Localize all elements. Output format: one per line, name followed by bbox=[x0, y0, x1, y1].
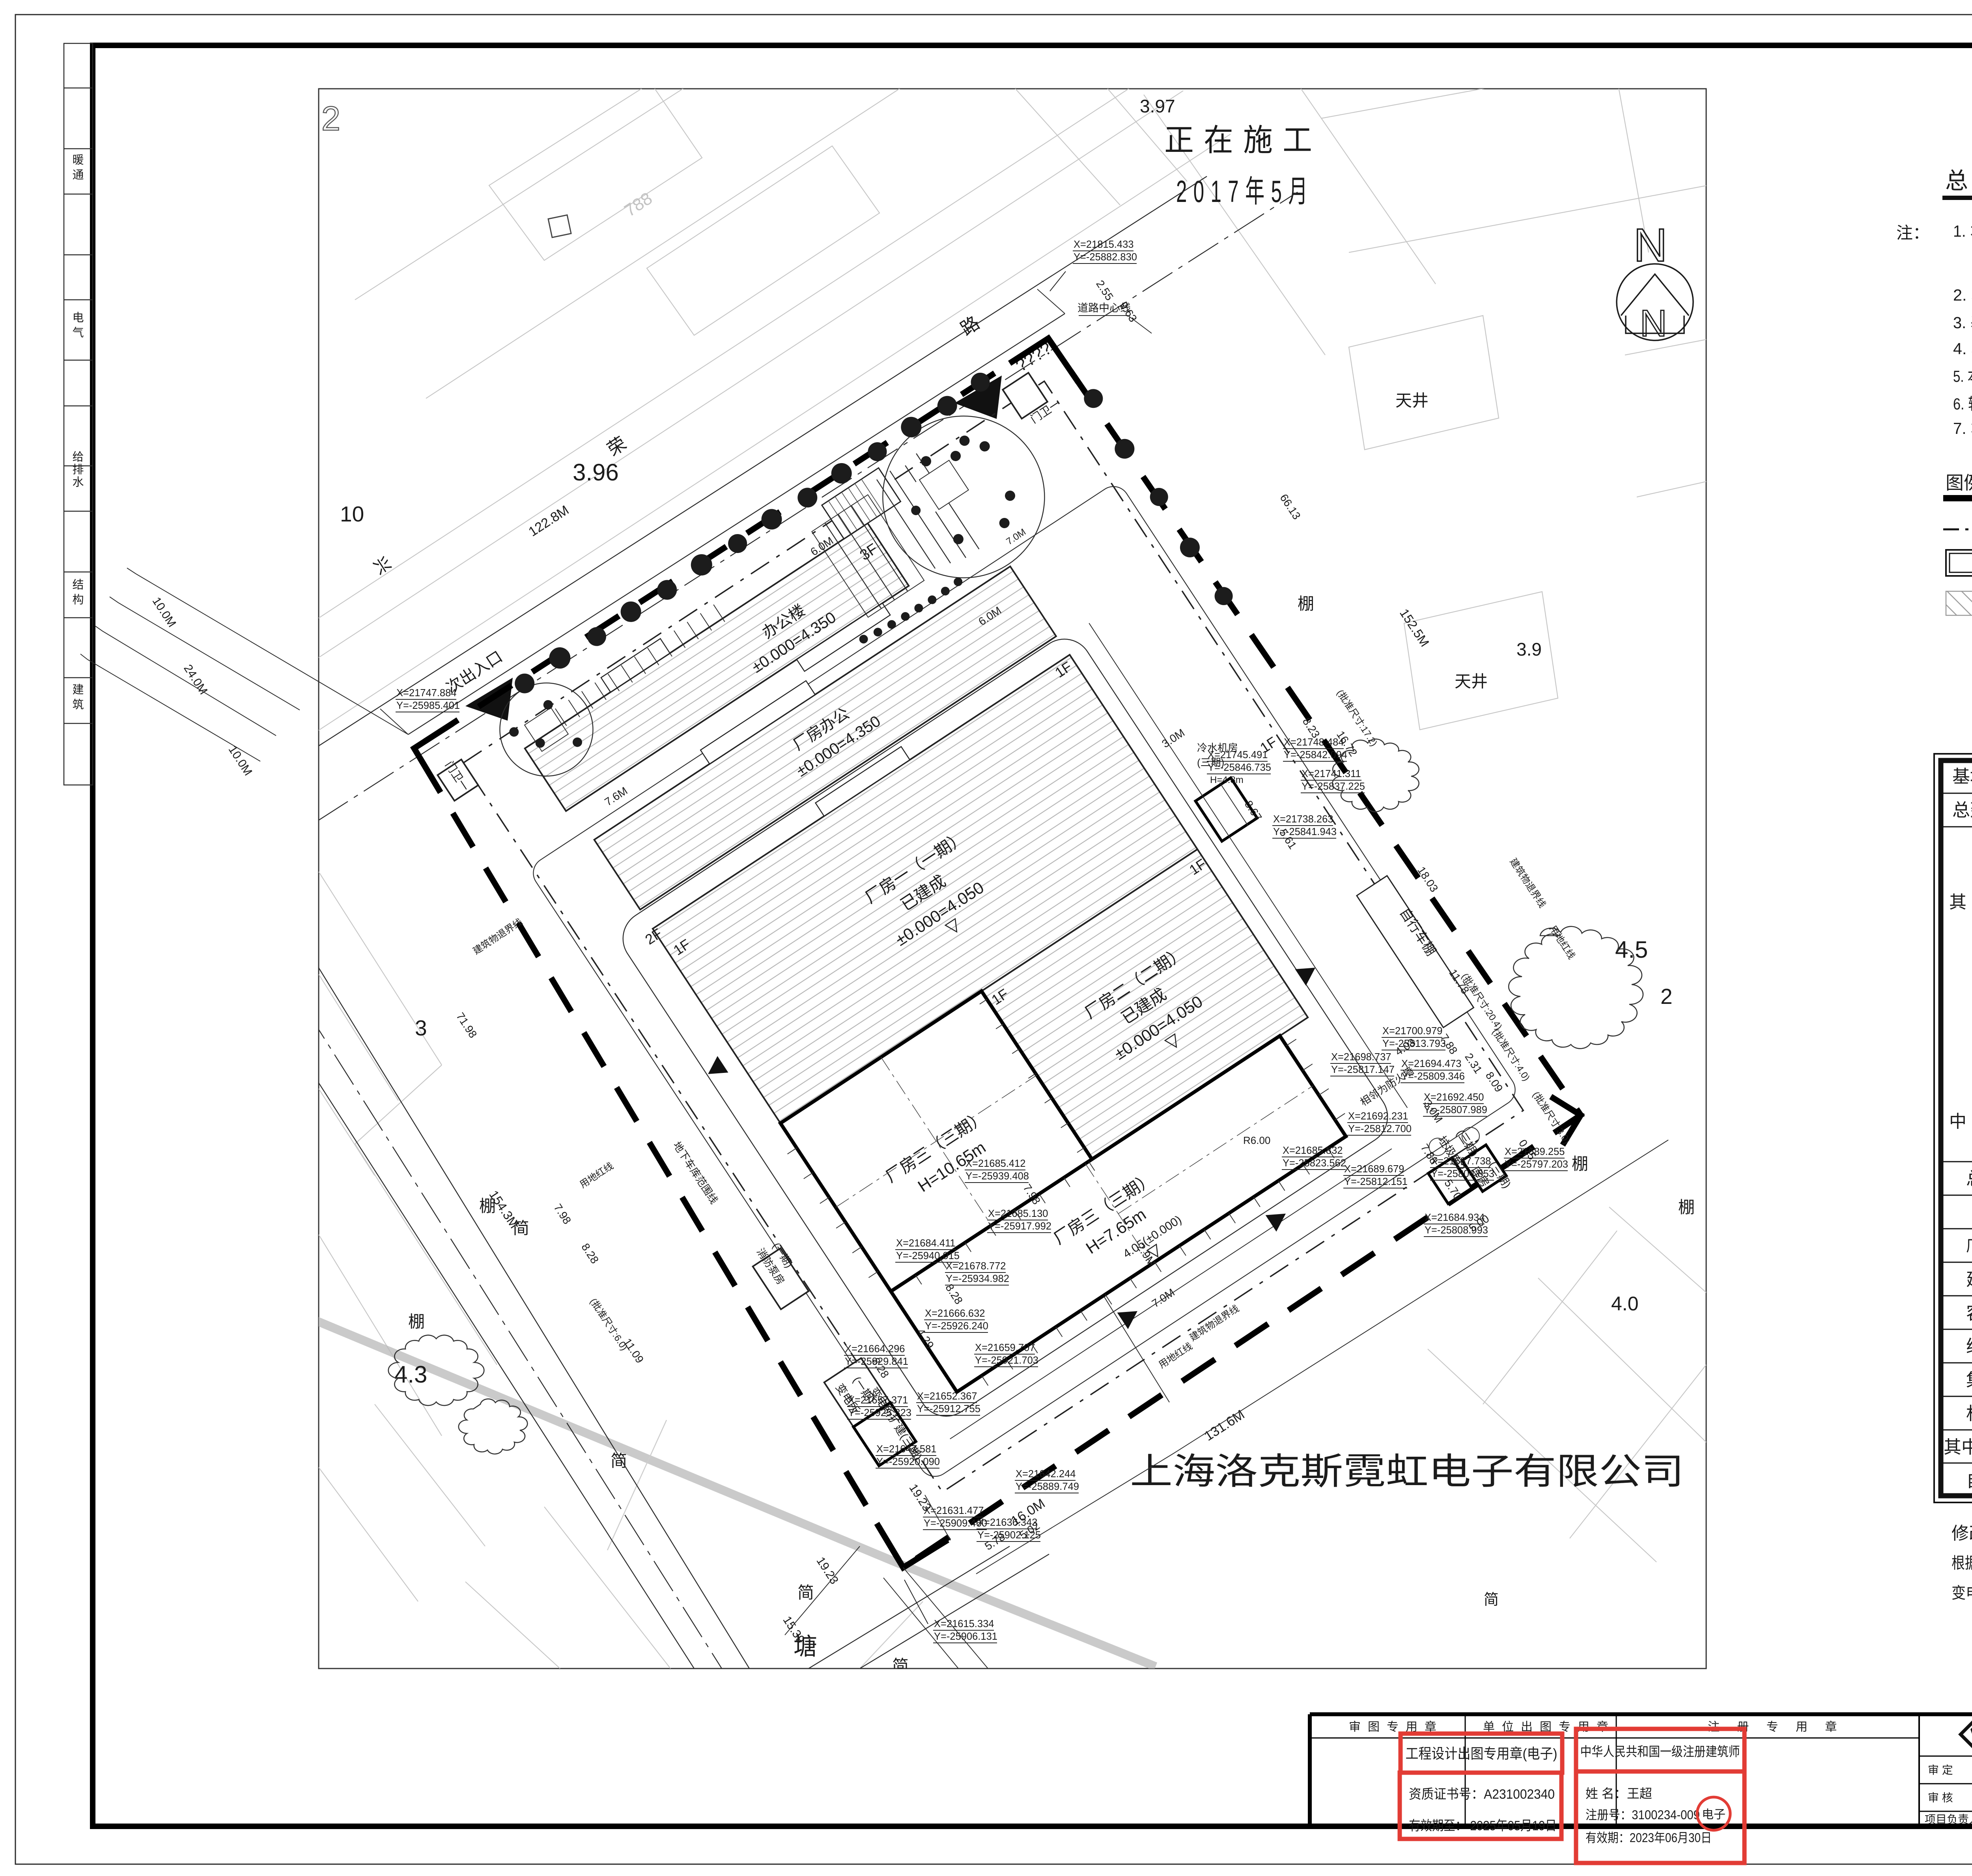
svg-text:塘: 塘 bbox=[794, 1633, 817, 1660]
svg-text:3.9: 3.9 bbox=[1516, 639, 1542, 660]
svg-text:2017年5月: 2017年5月 bbox=[1176, 174, 1314, 209]
svg-text:Y=-25812.151: Y=-25812.151 bbox=[1344, 1176, 1408, 1187]
svg-text:中: 中 bbox=[1949, 1112, 1966, 1131]
svg-text:审 定: 审 定 bbox=[1928, 1764, 1953, 1776]
svg-text:自行车位: 自行车位 bbox=[1966, 1471, 1972, 1491]
svg-text:4. 本图高程为吴淞高程系。: 4. 本图高程为吴淞高程系。 bbox=[1953, 340, 1972, 358]
svg-text:容积率（折算容积率）: 容积率（折算容积率） bbox=[1966, 1303, 1972, 1323]
svg-text:4.0: 4.0 bbox=[1611, 1293, 1639, 1315]
svg-text:Y=-25889.749: Y=-25889.749 bbox=[1016, 1481, 1079, 1492]
svg-text:10: 10 bbox=[340, 502, 364, 526]
svg-text:总计容建筑面积: 总计容建筑面积 bbox=[1966, 1169, 1972, 1189]
svg-text:X=21700.979: X=21700.979 bbox=[1382, 1026, 1442, 1037]
svg-text:X=21684.411: X=21684.411 bbox=[896, 1238, 956, 1249]
svg-text:Y=-25812.700: Y=-25812.700 bbox=[1348, 1123, 1412, 1134]
svg-text:Y=-25906.131: Y=-25906.131 bbox=[934, 1631, 997, 1642]
svg-text:Y=-25842.094: Y=-25842.094 bbox=[1284, 749, 1347, 760]
svg-text:厂房层高超过8米部分计容建筑面积: 厂房层高超过8米部分计容建筑面积 bbox=[1966, 1237, 1972, 1255]
svg-text:3. 基地红线及红线定位坐标以甲方提供的电子文件为依据.: 3. 基地红线及红线定位坐标以甲方提供的电子文件为依据. bbox=[1953, 314, 1972, 332]
svg-text:X=21631.477: X=21631.477 bbox=[924, 1505, 984, 1516]
svg-text:简: 简 bbox=[797, 1583, 814, 1602]
svg-text:X=21685.130: X=21685.130 bbox=[988, 1208, 1048, 1219]
svg-text:X=21685.832: X=21685.832 bbox=[1283, 1145, 1343, 1156]
svg-text:姓 名：王超: 姓 名：王超 bbox=[1585, 1786, 1652, 1801]
svg-text:X=21698.737: X=21698.737 bbox=[1331, 1052, 1391, 1063]
svg-text:2: 2 bbox=[321, 100, 340, 138]
svg-text:7. 本次设计建筑耐火等级：2级。: 7. 本次设计建筑耐火等级：2级。 bbox=[1953, 419, 1972, 437]
svg-text:简: 简 bbox=[611, 1452, 627, 1470]
svg-text:工程设计出图专用章(电子): 工程设计出图专用章(电子) bbox=[1406, 1745, 1557, 1762]
svg-text:Y=-25934.982: Y=-25934.982 bbox=[946, 1273, 1009, 1284]
svg-text:X=21652.367: X=21652.367 bbox=[917, 1391, 977, 1402]
svg-text:Y=-25985.401: Y=-25985.401 bbox=[396, 700, 460, 711]
svg-text:X=21642.244: X=21642.244 bbox=[1016, 1469, 1076, 1480]
svg-text:X=21685.412: X=21685.412 bbox=[965, 1158, 1025, 1169]
svg-text:Y=-25823.562: Y=-25823.562 bbox=[1283, 1158, 1346, 1169]
svg-text:X=21741.311: X=21741.311 bbox=[1302, 768, 1361, 779]
svg-text:简: 简 bbox=[1484, 1592, 1499, 1608]
svg-text:气: 气 bbox=[72, 326, 84, 339]
svg-text:审 核: 审 核 bbox=[1928, 1792, 1953, 1804]
svg-text:变电所、消防泵房的定位坐标及建筑物的尺寸，详见云线范围所备注: 变电所、消防泵房的定位坐标及建筑物的尺寸，详见云线范围所备注处。 bbox=[1951, 1585, 1972, 1602]
svg-text:4.5: 4.5 bbox=[1615, 936, 1648, 963]
svg-text:有效期：2023年06月30日: 有效期：2023年06月30日 bbox=[1585, 1831, 1712, 1845]
svg-text:有效期至： 2025年05月19日: 有效期至： 2025年05月19日 bbox=[1409, 1818, 1557, 1833]
svg-text:水: 水 bbox=[72, 476, 84, 489]
svg-text:资质证书号：A231002340: 资质证书号：A231002340 bbox=[1409, 1787, 1555, 1802]
svg-text:3.96: 3.96 bbox=[573, 459, 619, 486]
svg-text:天井: 天井 bbox=[1395, 391, 1429, 410]
svg-text:注册号：3100234-009: 注册号：3100234-009 bbox=[1585, 1808, 1700, 1822]
svg-text:Y=-25882.830: Y=-25882.830 bbox=[1074, 252, 1137, 263]
svg-text:X=21664.296: X=21664.296 bbox=[845, 1343, 905, 1355]
svg-text:4.3: 4.3 bbox=[394, 1361, 427, 1388]
svg-text:Y=-25809.346: Y=-25809.346 bbox=[1401, 1071, 1465, 1082]
svg-text:结: 结 bbox=[72, 578, 84, 591]
svg-text:中华人民共和国一级注册建筑师: 中华人民共和国一级注册建筑师 bbox=[1580, 1744, 1740, 1759]
svg-text:Y=-25940.015: Y=-25940.015 bbox=[896, 1250, 960, 1261]
svg-text:暖: 暖 bbox=[72, 153, 84, 166]
svg-text:建筑密度: 建筑密度 bbox=[1966, 1269, 1972, 1289]
svg-text:X=21689.679: X=21689.679 bbox=[1344, 1164, 1404, 1175]
svg-text:H=4.8m: H=4.8m bbox=[1210, 775, 1244, 785]
svg-text:修改说明：: 修改说明： bbox=[1951, 1524, 1972, 1543]
svg-text:正在施工: 正在施工 bbox=[1164, 123, 1322, 157]
svg-text:通: 通 bbox=[72, 169, 84, 181]
svg-text:R6.00: R6.00 bbox=[1243, 1134, 1270, 1146]
svg-text:X=21694.473: X=21694.473 bbox=[1401, 1058, 1461, 1069]
svg-text:排: 排 bbox=[72, 463, 84, 476]
svg-text:Y=-25925.323: Y=-25925.323 bbox=[848, 1407, 911, 1418]
svg-text:5. 本图以米为单位。本图标注尺寸均以外墙外墙外轮廓为边界: 5. 本图以米为单位。本图标注尺寸均以外墙外墙外轮廓为边界,标注坐标为单体建筑轴… bbox=[1953, 367, 1972, 385]
svg-text:注：: 注： bbox=[1896, 224, 1929, 242]
svg-text:Y=-25926.240: Y=-25926.240 bbox=[925, 1321, 988, 1332]
svg-text:棚: 棚 bbox=[1572, 1155, 1588, 1173]
svg-text:棚: 棚 bbox=[1678, 1198, 1695, 1216]
svg-text:其中: 其中 bbox=[1944, 1437, 1972, 1457]
svg-text:Y=-25939.408: Y=-25939.408 bbox=[965, 1171, 1029, 1182]
svg-text:棚: 棚 bbox=[408, 1312, 425, 1331]
svg-text:天井: 天井 bbox=[1455, 672, 1488, 691]
svg-text:上海洛克斯霓虹电子有限公司: 上海洛克斯霓虹电子有限公司 bbox=[1130, 1452, 1684, 1492]
svg-text:2: 2 bbox=[1660, 984, 1673, 1009]
svg-text:机动车停车位: 机动车停车位 bbox=[1966, 1403, 1972, 1424]
svg-text:总建筑面积: 总建筑面积 bbox=[1952, 800, 1972, 820]
svg-text:X=21666.632: X=21666.632 bbox=[925, 1308, 985, 1319]
svg-text:X=21615.334: X=21615.334 bbox=[934, 1618, 994, 1629]
svg-text:X=21738.263: X=21738.263 bbox=[1273, 814, 1333, 825]
svg-text:绿地率: 绿地率 bbox=[1966, 1336, 1972, 1357]
svg-text:电: 电 bbox=[72, 311, 84, 324]
svg-text:2. 本图表示所有建筑的位置和相邻间距。: 2. 本图表示所有建筑的位置和相邻间距。 bbox=[1953, 286, 1972, 304]
svg-text:其: 其 bbox=[1949, 893, 1966, 912]
svg-text:X=21747.884: X=21747.884 bbox=[396, 688, 456, 699]
svg-text:建: 建 bbox=[72, 683, 84, 696]
svg-text:Y=-25920.090: Y=-25920.090 bbox=[876, 1456, 940, 1467]
svg-text:根据业主提供的竣工实测报告，本次按现场建筑物的实际定位修改了: 根据业主提供的竣工实测报告，本次按现场建筑物的实际定位修改了冷水机房、垃圾房2 … bbox=[1951, 1555, 1972, 1572]
svg-text:X=21657.371: X=21657.371 bbox=[848, 1395, 908, 1406]
svg-text:X=21692.231: X=21692.231 bbox=[1348, 1111, 1408, 1122]
svg-text:X=21647.581: X=21647.581 bbox=[876, 1444, 936, 1455]
svg-text:3: 3 bbox=[415, 1016, 427, 1040]
svg-text:Y=-25817.147: Y=-25817.147 bbox=[1331, 1064, 1395, 1075]
svg-text:X=21678.772: X=21678.772 bbox=[946, 1261, 1006, 1272]
svg-text:给: 给 bbox=[72, 450, 84, 463]
svg-text:1. 本工程施工图设计包括厂房三、垃圾房2 、喷淋泵房、配: 1. 本工程施工图设计包括厂房三、垃圾房2 、喷淋泵房、配电房扩建、库房 bbox=[1953, 222, 1972, 240]
svg-text:Y=-25797.203: Y=-25797.203 bbox=[1505, 1159, 1568, 1170]
svg-text:集中绿化率: 集中绿化率 bbox=[1966, 1370, 1972, 1390]
svg-text:6. 转弯半径系道路转弯半径，基地内道路兼做消防车道，折算: 6. 转弯半径系道路转弯半径，基地内道路兼做消防车道，折算转弯半径均为9m。 bbox=[1953, 395, 1972, 413]
svg-text:Y=-25912.755: Y=-25912.755 bbox=[917, 1403, 980, 1414]
svg-text:X=21659.707: X=21659.707 bbox=[975, 1342, 1035, 1353]
svg-text:图例: 图例 bbox=[1946, 473, 1972, 493]
svg-text:N: N bbox=[1640, 303, 1667, 344]
svg-text:X=21687.738: X=21687.738 bbox=[1431, 1156, 1491, 1167]
svg-text:X=21745.491: X=21745.491 bbox=[1208, 749, 1268, 760]
svg-text:棚: 棚 bbox=[1298, 594, 1314, 613]
svg-text:X=21815.433: X=21815.433 bbox=[1074, 239, 1134, 250]
svg-text:Y=-25846.735: Y=-25846.735 bbox=[1208, 762, 1271, 773]
svg-text:Y=-25921.703: Y=-25921.703 bbox=[975, 1355, 1038, 1366]
svg-text:总平面图: 总平面图 bbox=[1945, 168, 1972, 194]
svg-text:筑: 筑 bbox=[72, 698, 84, 711]
svg-text:项目负责人: 项目负责人 bbox=[1925, 1813, 1972, 1826]
svg-text:3.97: 3.97 bbox=[1140, 96, 1175, 116]
svg-text:Y=-25917.992: Y=-25917.992 bbox=[988, 1221, 1051, 1232]
svg-text:电子: 电子 bbox=[1702, 1808, 1725, 1821]
svg-text:构: 构 bbox=[72, 593, 84, 606]
svg-text:基地总面积: 基地总面积 bbox=[1952, 766, 1972, 787]
svg-text:Y=-25804.853: Y=-25804.853 bbox=[1431, 1168, 1494, 1179]
